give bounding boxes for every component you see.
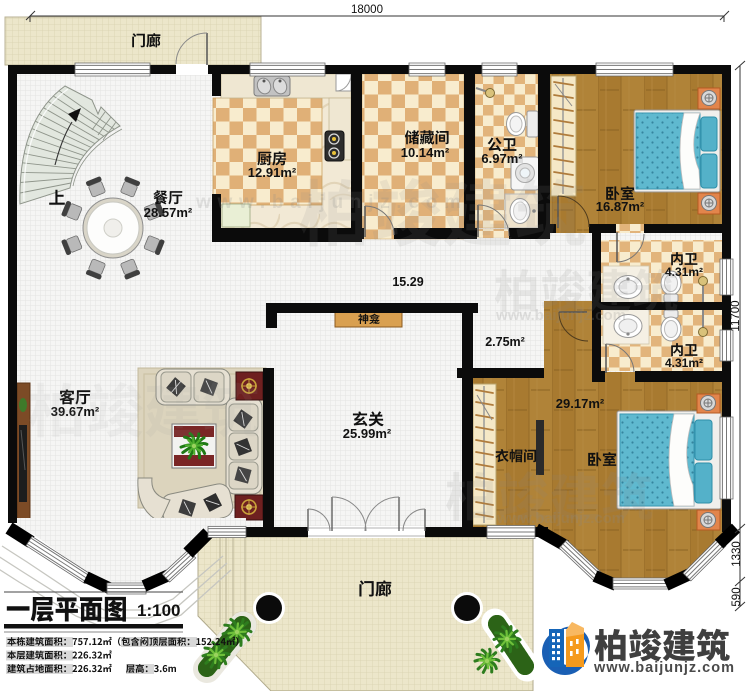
svg-text:10.14m²: 10.14m² bbox=[401, 145, 450, 160]
svg-text:www.baijunjz.com: www.baijunjz.com bbox=[495, 307, 626, 324]
svg-text:28.57m²: 28.57m² bbox=[144, 205, 193, 220]
svg-text:11700: 11700 bbox=[730, 300, 742, 331]
svg-text:25.99m²: 25.99m² bbox=[343, 426, 392, 441]
svg-text:4.31m²: 4.31m² bbox=[665, 356, 703, 370]
svg-text:2.75m²: 2.75m² bbox=[485, 335, 525, 349]
svg-text:12.91m²: 12.91m² bbox=[248, 165, 297, 180]
svg-text:6.97m²: 6.97m² bbox=[481, 151, 523, 166]
svg-text:www.baijunjz.com: www.baijunjz.com bbox=[496, 510, 625, 527]
svg-text:16.87m²: 16.87m² bbox=[596, 199, 645, 214]
svg-text:18000: 18000 bbox=[351, 4, 383, 16]
svg-text:29.17m²: 29.17m² bbox=[556, 396, 605, 411]
svg-text:1:100: 1:100 bbox=[137, 601, 180, 620]
svg-text:15.29: 15.29 bbox=[392, 275, 423, 289]
svg-text:www.baijunjz.com: www.baijunjz.com bbox=[593, 660, 734, 676]
svg-text:1330: 1330 bbox=[731, 541, 743, 567]
svg-text:590: 590 bbox=[731, 587, 743, 606]
